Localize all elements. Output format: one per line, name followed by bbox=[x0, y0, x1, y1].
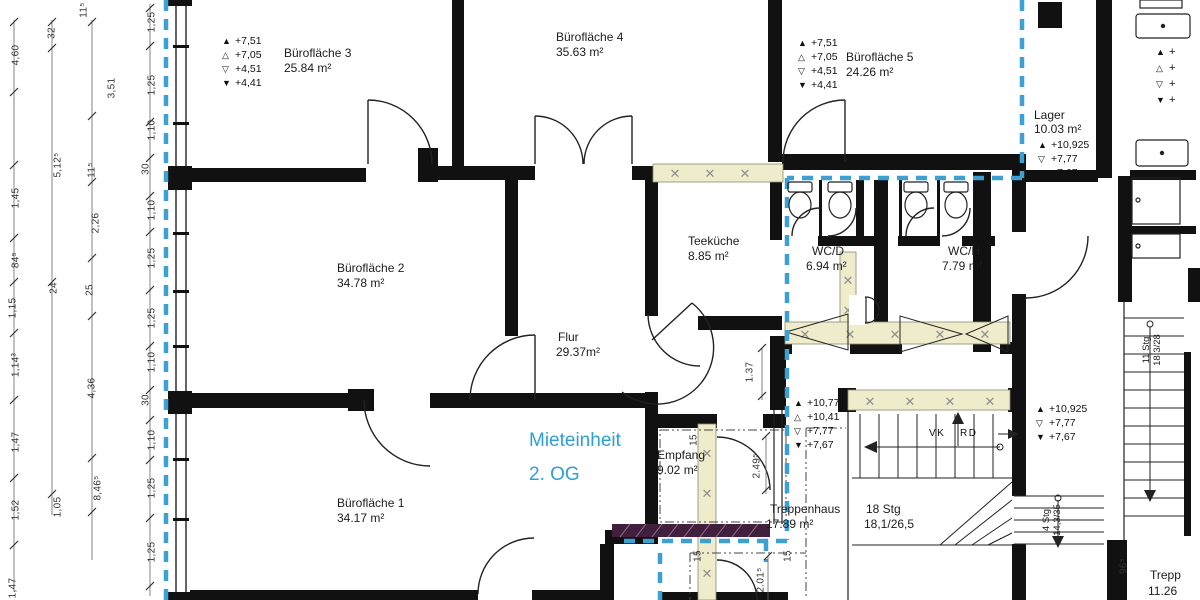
dimension-label: 3,51 bbox=[107, 78, 118, 99]
svg-text:✕: ✕ bbox=[985, 395, 996, 410]
dimension-label: 1,25 bbox=[147, 12, 158, 33]
room-label-treppenhaus: Treppenhaus bbox=[770, 502, 840, 516]
room-label-teekueche: Teeküche bbox=[688, 234, 739, 248]
level-markers-right-edge: ▲+ △+ ▽+ ▼+ bbox=[1156, 44, 1175, 108]
stair-label-neighbor: 11 Stg18,3/28 bbox=[1141, 334, 1163, 366]
room-area-wcd: 6.94 m² bbox=[806, 259, 847, 273]
dimension-label: 1,25 bbox=[147, 478, 158, 499]
dimension-label: 11⁵ bbox=[79, 2, 90, 17]
dimension-label: 1,10 bbox=[147, 200, 158, 221]
exterior-window-wall bbox=[168, 0, 192, 600]
dimension-label: 1.37 bbox=[745, 362, 756, 383]
room-area-lager: 10.03 m² bbox=[1034, 122, 1081, 136]
dimension-label: 1,10 bbox=[147, 120, 158, 141]
dimension-label: 1,25 bbox=[147, 308, 158, 329]
dimension-label: 1,10 bbox=[147, 430, 158, 451]
svg-text:✕: ✕ bbox=[845, 328, 856, 343]
dimension-label: 1,25 bbox=[147, 248, 158, 269]
dimension-label: 1,14³ bbox=[11, 353, 22, 377]
stair-steps-main: 18 Stg bbox=[866, 502, 901, 516]
dimension-label: 4,36 bbox=[87, 378, 98, 399]
room-area-treppenhaus: 17.89 m² bbox=[766, 517, 813, 531]
annotation-vk: VK bbox=[929, 428, 945, 439]
svg-text:✕: ✕ bbox=[705, 167, 716, 182]
stair-label-side: 4 Stg14,3/35 bbox=[1041, 504, 1063, 536]
dimension-label: 1,47 bbox=[11, 432, 22, 453]
dimension-label: 1,25 bbox=[147, 75, 158, 96]
floorplan-drawing: ✕✕✕ ✕✕ ✕✕✕ ✕✕ ✕✕✕✕ ✕✕✕✕ bbox=[0, 0, 1200, 600]
dimension-label: 25 bbox=[85, 284, 96, 296]
svg-text:✕: ✕ bbox=[905, 395, 916, 410]
dimension-label: 4,60 bbox=[11, 45, 22, 66]
dimension-label: 15 bbox=[689, 434, 700, 446]
room-area-buero1: 34.17 m² bbox=[337, 511, 384, 525]
dimension-label: 24 bbox=[49, 282, 60, 294]
room-label-buero5: Bürofläche 5 bbox=[846, 50, 913, 64]
dimension-label: 2.49⁵ bbox=[752, 453, 763, 478]
dimension-label: 15 bbox=[693, 550, 704, 562]
svg-text:✕: ✕ bbox=[740, 167, 751, 182]
stair-ratio-main: 18,1/26,5 bbox=[864, 517, 914, 531]
svg-text:✕: ✕ bbox=[843, 274, 854, 289]
room-label-treppe-cut: Trepp bbox=[1150, 568, 1181, 582]
dimension-label: 1,25 bbox=[147, 542, 158, 563]
dimension-label: 1,45 bbox=[11, 188, 22, 209]
room-label-buero2: Bürofläche 2 bbox=[337, 261, 404, 275]
room-label-wch: WC/H bbox=[948, 244, 980, 258]
level-markers-buero5: ▲+7,51 △+7,05 ▽+4,51 ▼+4,41 bbox=[798, 36, 838, 92]
dimension-label: 1,15 bbox=[8, 298, 19, 319]
room-label-wcd: WC/D bbox=[812, 244, 844, 258]
dimension-label: 5,12⁵ bbox=[53, 152, 64, 177]
room-area-buero5: 24.26 m² bbox=[846, 65, 893, 79]
dimension-label: 96⁵ bbox=[1119, 558, 1130, 574]
level-markers-corridor-right: ▲+10,925 ▽+7,77 ▼+7,67 bbox=[1036, 402, 1087, 444]
level-markers-stair-mid: ▲+10,77 △+10,41 ▽+7,77 ▼+7,67 bbox=[794, 396, 839, 452]
demolition-wall bbox=[612, 524, 770, 537]
unit-label-line1: Mieteinheit bbox=[529, 430, 621, 452]
room-label-buero1: Bürofläche 1 bbox=[337, 496, 404, 510]
dimension-label: 2.01⁵ bbox=[756, 567, 767, 592]
dimension-label: 1,05 bbox=[53, 497, 64, 518]
svg-text:✕: ✕ bbox=[800, 328, 811, 343]
room-area-empfang: 9.02 m² bbox=[657, 463, 698, 477]
dimension-label: 1,52 bbox=[11, 500, 22, 521]
dimension-label: 30 bbox=[141, 394, 152, 406]
room-label-buero4: Bürofläche 4 bbox=[556, 30, 623, 44]
room-label-flur: Flur bbox=[558, 330, 579, 344]
room-label-empfang: Empfang bbox=[657, 448, 705, 462]
dimension-label: 32 bbox=[47, 27, 58, 39]
svg-text:✕: ✕ bbox=[890, 328, 901, 343]
dimension-label: 2,26 bbox=[91, 213, 102, 234]
dimension-label: 15 bbox=[783, 550, 794, 562]
svg-text:✕: ✕ bbox=[670, 167, 681, 182]
dimension-label: 30 bbox=[141, 163, 152, 175]
svg-text:✕: ✕ bbox=[702, 487, 713, 502]
level-markers-lager: ▲+10,925 ▽+7,77 ▼+7,67 bbox=[1038, 138, 1089, 180]
room-area-treppe-cut: 11.26 bbox=[1148, 584, 1177, 598]
room-label-lager: Lager bbox=[1034, 108, 1065, 122]
room-area-wch: 7.79 m² bbox=[942, 259, 983, 273]
svg-text:✕: ✕ bbox=[702, 567, 713, 582]
dimension-label: 1,47 bbox=[8, 578, 19, 599]
unit-label-line2: 2. OG bbox=[529, 464, 580, 486]
dimension-label: 11⁵ bbox=[87, 162, 98, 177]
dimension-label: 8,46⁵ bbox=[93, 475, 104, 500]
room-area-buero3: 25.84 m² bbox=[284, 61, 331, 75]
room-label-buero3: Bürofläche 3 bbox=[284, 46, 351, 60]
annotation-rd: RD bbox=[960, 428, 977, 439]
washbasins bbox=[1132, 0, 1190, 258]
level-markers-buero3: ▲+7,51 △+7,05 ▽+4,51 ▼+4,41 bbox=[222, 34, 262, 90]
dimension-label: 84⁵ bbox=[11, 252, 22, 268]
svg-text:✕: ✕ bbox=[865, 395, 876, 410]
svg-text:✕: ✕ bbox=[945, 395, 956, 410]
room-area-buero2: 34.78 m² bbox=[337, 276, 384, 290]
room-area-teekueche: 8.85 m² bbox=[688, 249, 729, 263]
room-area-flur: 29.37m² bbox=[556, 345, 600, 359]
floorplan-page: { "unit_label": { "line1": "Mieteinheit"… bbox=[0, 0, 1200, 600]
room-area-buero4: 35.63 m² bbox=[556, 45, 603, 59]
dimension-label: 1,10 bbox=[147, 352, 158, 373]
